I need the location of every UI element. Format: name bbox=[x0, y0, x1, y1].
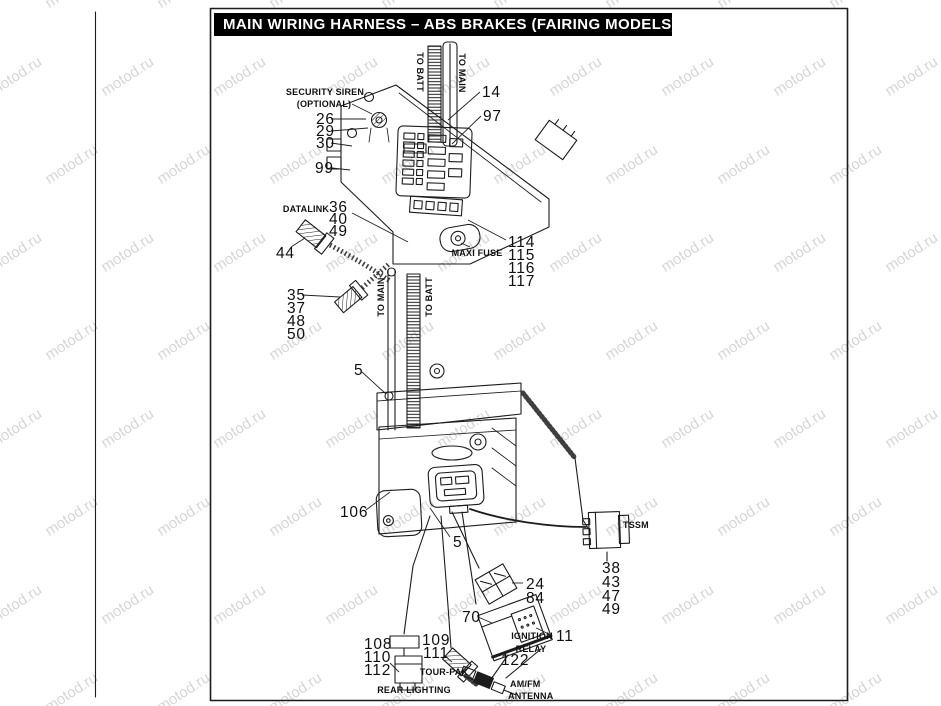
ignition-relay bbox=[462, 512, 552, 682]
connector-24-84 bbox=[452, 512, 517, 604]
datalink-connector bbox=[295, 217, 390, 314]
parts-diagram-page: motod.rumotod.rumotod.rumotod.rumotod.ru… bbox=[0, 0, 941, 706]
circuit-breaker bbox=[535, 115, 580, 159]
security-siren bbox=[372, 113, 387, 128]
tssm-connector bbox=[470, 509, 630, 561]
diagram-title-bar: MAIN WIRING HARNESS – ABS BRAKES (FAIRIN… bbox=[214, 13, 672, 36]
tour-pak-connector bbox=[441, 516, 478, 684]
wiring-diagram-line-art bbox=[0, 0, 941, 706]
maxi-fuse-holder bbox=[438, 223, 482, 254]
main-harness-loom bbox=[388, 268, 421, 430]
rear-lighting-connector bbox=[390, 516, 430, 690]
electrical-caddy bbox=[327, 85, 580, 264]
diagram-title: MAIN WIRING HARNESS – ABS BRAKES (FAIRIN… bbox=[223, 16, 677, 33]
